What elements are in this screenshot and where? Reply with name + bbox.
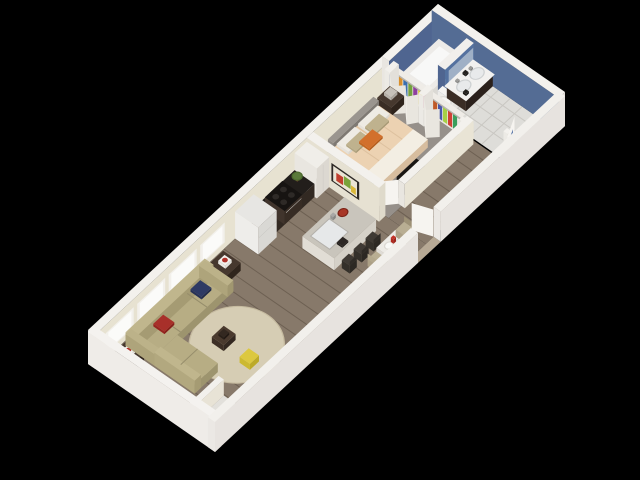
se-wall-left-side — [208, 417, 215, 452]
floor-plan-viewport — [0, 0, 640, 480]
se-wall-right-side — [434, 207, 441, 242]
closet-bifold-4 — [407, 94, 419, 124]
closet-bifold-6 — [426, 109, 440, 138]
apartment-3d-floor-plan — [0, 0, 640, 480]
closet-clothes-11 — [443, 107, 447, 124]
closet-clothes-12 — [448, 111, 452, 128]
closet-pier-2-side — [419, 93, 424, 127]
bedroom-hall-wall-side — [398, 180, 404, 208]
kitchen-bedroom-wall-front — [379, 182, 385, 222]
